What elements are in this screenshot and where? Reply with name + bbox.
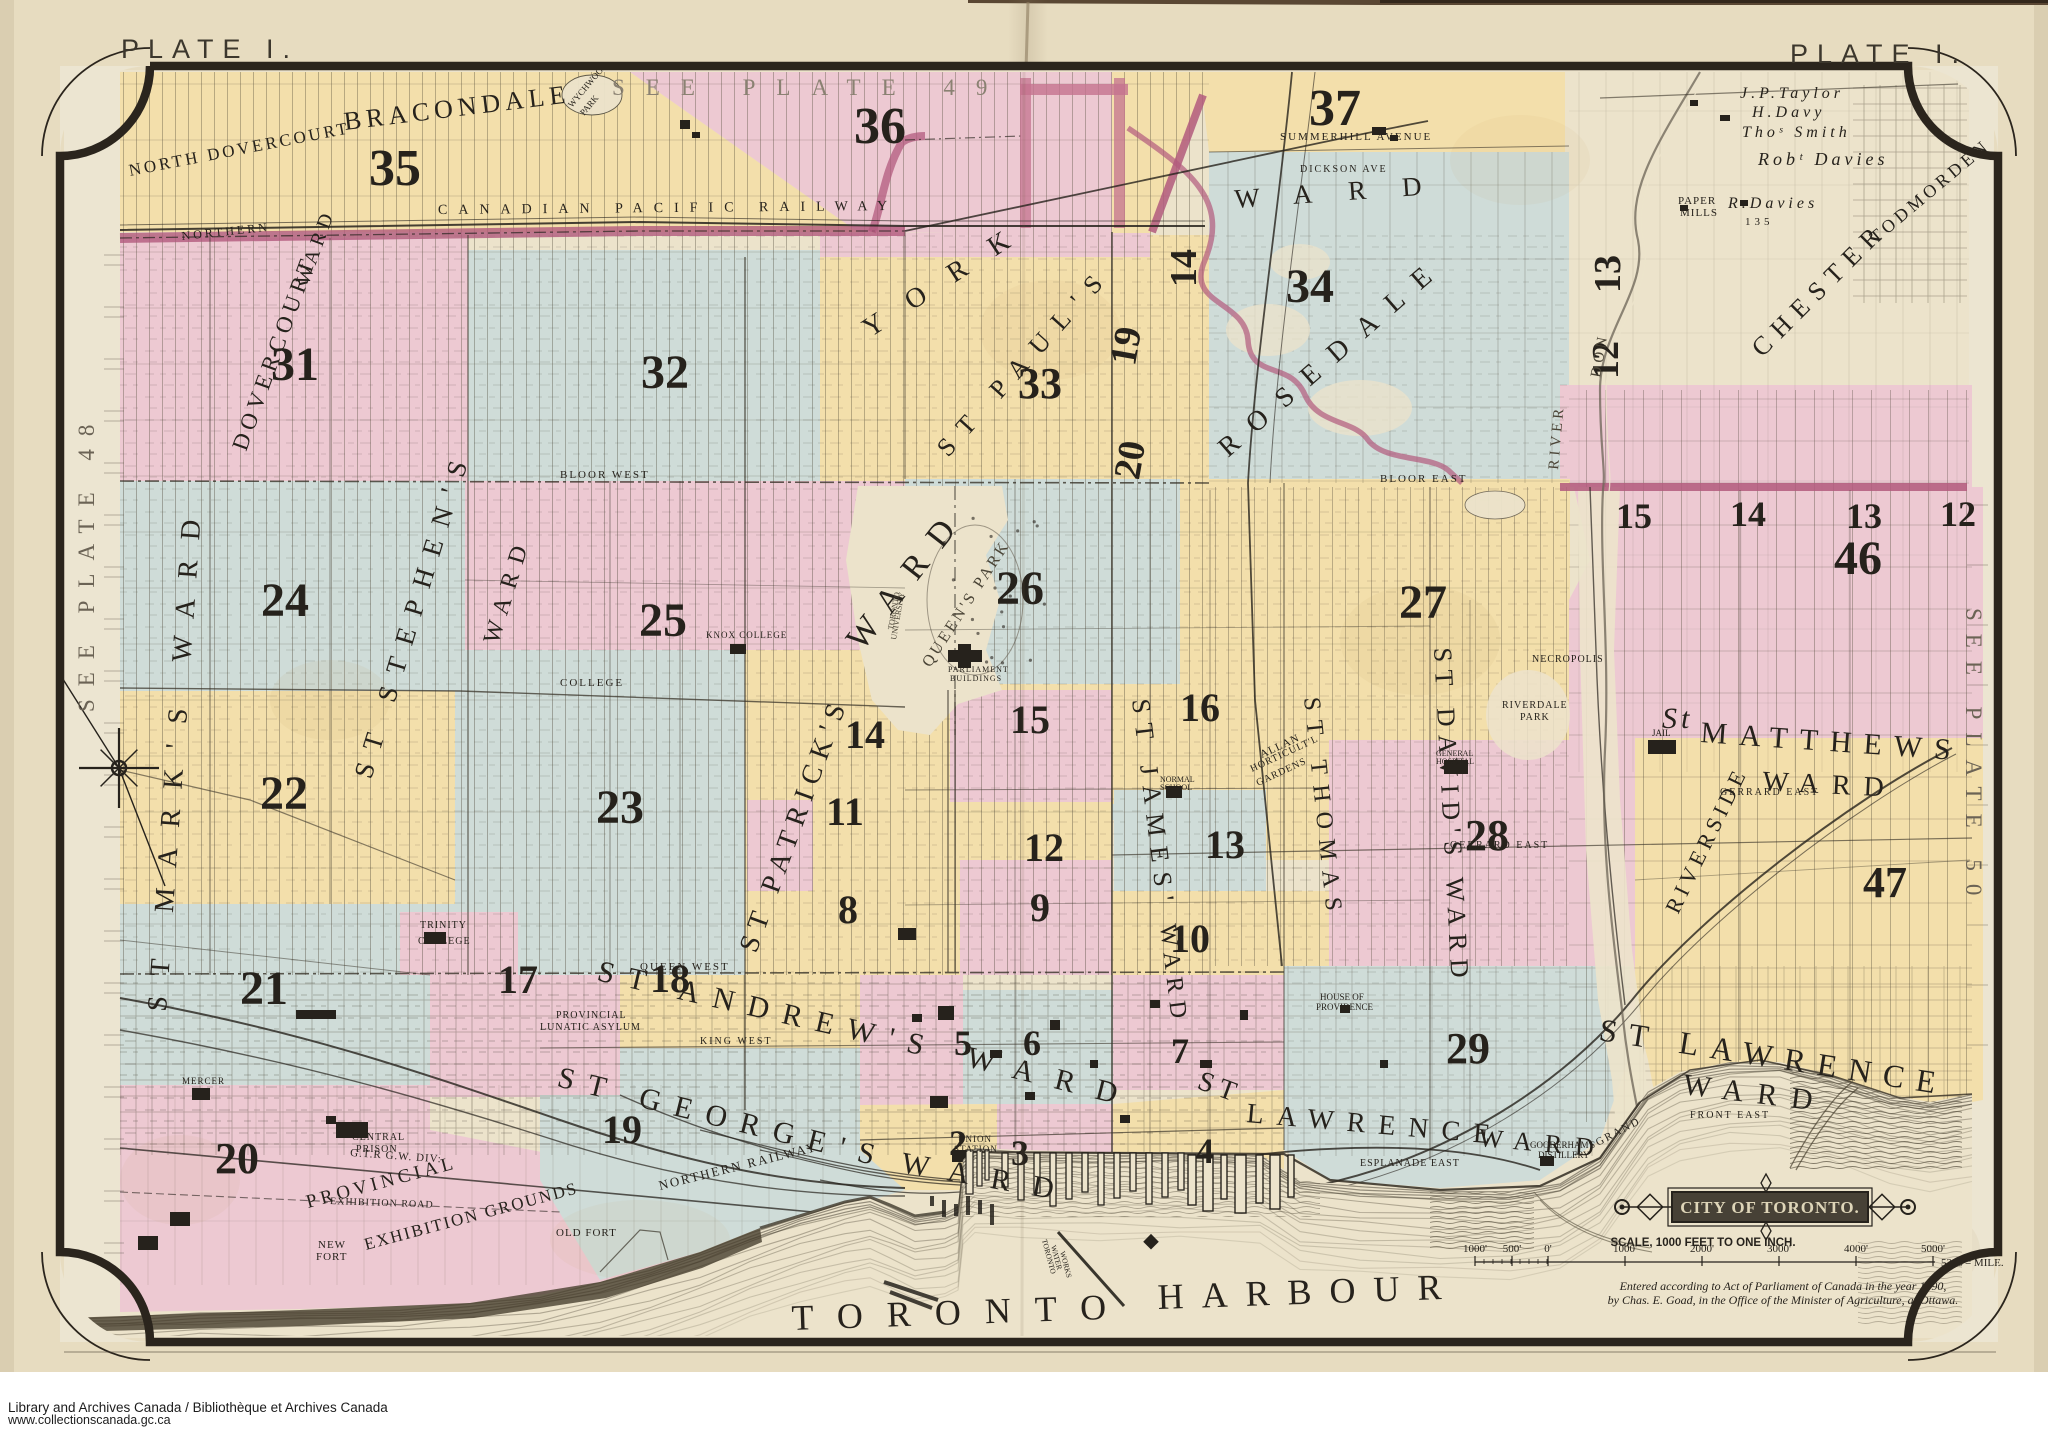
svg-text:22: 22	[260, 767, 308, 820]
svg-text:J.P.Taylor: J.P.Taylor	[1740, 85, 1844, 102]
svg-text:BLOOR WEST: BLOOR WEST	[560, 469, 650, 481]
svg-text:37: 37	[1309, 80, 1361, 137]
svg-text:PARLIAMENT: PARLIAMENT	[948, 665, 1009, 674]
svg-text:12: 12	[1024, 825, 1064, 870]
svg-text:29: 29	[1446, 1024, 1490, 1073]
svg-text:7: 7	[1171, 1031, 1189, 1071]
svg-text:JAIL: JAIL	[1652, 728, 1671, 738]
svg-text:BLOOR EAST: BLOOR EAST	[1380, 473, 1468, 485]
svg-text:FRONT EAST: FRONT EAST	[1690, 1110, 1770, 1121]
svg-text:46: 46	[1834, 532, 1882, 585]
svg-text:PAPER: PAPER	[1678, 195, 1716, 207]
svg-text:OLD FORT: OLD FORT	[556, 1227, 617, 1239]
svg-text:LUNATIC ASYLUM: LUNATIC ASYLUM	[540, 1022, 641, 1033]
svg-text:RIVERDALE: RIVERDALE	[1502, 700, 1568, 711]
svg-text:FORT: FORT	[316, 1251, 347, 1263]
svg-text:14: 14	[1730, 494, 1766, 534]
svg-text:KING WEST: KING WEST	[700, 1036, 773, 1047]
svg-text:KNOX COLLEGE: KNOX COLLEGE	[706, 630, 787, 640]
svg-text:3000': 3000'	[1767, 1243, 1791, 1255]
svg-text:TRINITY: TRINITY	[420, 920, 467, 931]
svg-text:Entered according to Act of Pa: Entered according to Act of Parliament o…	[1619, 1279, 1947, 1293]
svg-text:13: 13	[1587, 255, 1629, 293]
svg-text:15: 15	[1010, 697, 1050, 742]
svg-text:HOSPITAL: HOSPITAL	[1436, 757, 1474, 766]
svg-text:www.collectionscanada.gc.ca: www.collectionscanada.gc.ca	[7, 1413, 171, 1427]
svg-text:19: 19	[602, 1107, 642, 1152]
svg-text:SEE PLATE 50: SEE PLATE 50	[1961, 608, 1986, 908]
svg-text:NECROPOLIS: NECROPOLIS	[1532, 654, 1604, 665]
svg-text:27: 27	[1399, 576, 1447, 629]
svg-text:PLATE I.: PLATE I.	[121, 34, 299, 64]
svg-text:PARK: PARK	[1520, 712, 1550, 723]
svg-text:1000': 1000'	[1463, 1243, 1487, 1255]
svg-text:15: 15	[1616, 496, 1652, 536]
svg-text:16: 16	[1180, 685, 1220, 730]
svg-text:135: 135	[1745, 216, 1774, 228]
svg-text:DISTILLERY: DISTILLERY	[1538, 1150, 1590, 1160]
svg-text:35: 35	[369, 140, 421, 197]
svg-text:R.Davies: R.Davies	[1727, 195, 1818, 212]
svg-text:Robᵗ Davies: Robᵗ Davies	[1757, 149, 1889, 169]
svg-text:19: 19	[1102, 324, 1150, 369]
svg-text:H.Davy: H.Davy	[1751, 104, 1825, 121]
svg-text:32: 32	[641, 346, 689, 399]
svg-text:9: 9	[1030, 885, 1050, 930]
svg-text:14: 14	[1163, 249, 1205, 287]
svg-text:21: 21	[240, 962, 288, 1015]
svg-text:GOODERHAM'S: GOODERHAM'S	[1530, 1140, 1595, 1150]
svg-text:PLATE I.: PLATE I.	[1790, 39, 1968, 69]
svg-text:14: 14	[845, 712, 885, 757]
svg-text:34: 34	[1286, 260, 1334, 313]
svg-text:8: 8	[838, 887, 858, 932]
svg-text:SCHOOL: SCHOOL	[1160, 783, 1192, 792]
svg-text:2000': 2000'	[1690, 1243, 1714, 1255]
svg-text:COLLEGE: COLLEGE	[418, 936, 471, 947]
svg-text:NEW: NEW	[318, 1239, 346, 1251]
svg-text:PROVIDENCE: PROVIDENCE	[1316, 1002, 1374, 1012]
svg-text:13: 13	[1205, 822, 1245, 867]
svg-text:COLLEGE: COLLEGE	[560, 677, 624, 689]
svg-text:MERCER: MERCER	[182, 1076, 225, 1086]
svg-text:SUMMERHILL AVENUE: SUMMERHILL AVENUE	[1280, 131, 1432, 143]
svg-text:PROVINCIAL: PROVINCIAL	[556, 1010, 627, 1021]
svg-text:BUILDINGS: BUILDINGS	[950, 674, 1002, 683]
svg-text:5000': 5000'	[1921, 1243, 1945, 1255]
svg-text:HOUSE OF: HOUSE OF	[1320, 992, 1364, 1002]
svg-text:17: 17	[498, 957, 538, 1002]
svg-text:STATION: STATION	[954, 1144, 998, 1154]
svg-text:SEE PLATE 48: SEE PLATE 48	[74, 412, 99, 712]
svg-text:4: 4	[1196, 1131, 1214, 1171]
svg-text:MILLS: MILLS	[1680, 207, 1718, 219]
svg-text:36: 36	[854, 98, 906, 155]
svg-text:13: 13	[1846, 496, 1882, 536]
svg-text:26: 26	[996, 562, 1044, 615]
svg-text:4000': 4000'	[1844, 1243, 1868, 1255]
svg-text:20: 20	[215, 1134, 259, 1183]
svg-text:25: 25	[639, 594, 687, 647]
svg-text:CENTRAL: CENTRAL	[352, 1132, 405, 1143]
svg-text:23: 23	[596, 781, 644, 834]
svg-text:12: 12	[1940, 494, 1976, 534]
svg-text:20: 20	[1106, 438, 1154, 483]
svg-text:ESPLANADE EAST: ESPLANADE EAST	[1360, 1158, 1460, 1169]
svg-text:500': 500'	[1503, 1243, 1522, 1255]
svg-text:SEE PLATE 49: SEE PLATE 49	[612, 75, 1008, 100]
svg-text:DICKSON AVE: DICKSON AVE	[1300, 164, 1388, 175]
svg-text:11: 11	[826, 789, 864, 834]
svg-text:0': 0'	[1544, 1243, 1552, 1255]
svg-text:UNION: UNION	[958, 1134, 992, 1144]
svg-text:28: 28	[1465, 811, 1509, 860]
svg-text:CITY OF TORONTO.: CITY OF TORONTO.	[1680, 1198, 1860, 1217]
svg-text:Thoˢ Smith: Thoˢ Smith	[1742, 124, 1851, 141]
svg-text:by Chas. E. Goad, in the Offic: by Chas. E. Goad, in the Office of the M…	[1608, 1293, 1959, 1307]
svg-text:47: 47	[1863, 858, 1907, 907]
svg-text:24: 24	[261, 574, 309, 627]
svg-text:1000': 1000'	[1613, 1243, 1637, 1255]
